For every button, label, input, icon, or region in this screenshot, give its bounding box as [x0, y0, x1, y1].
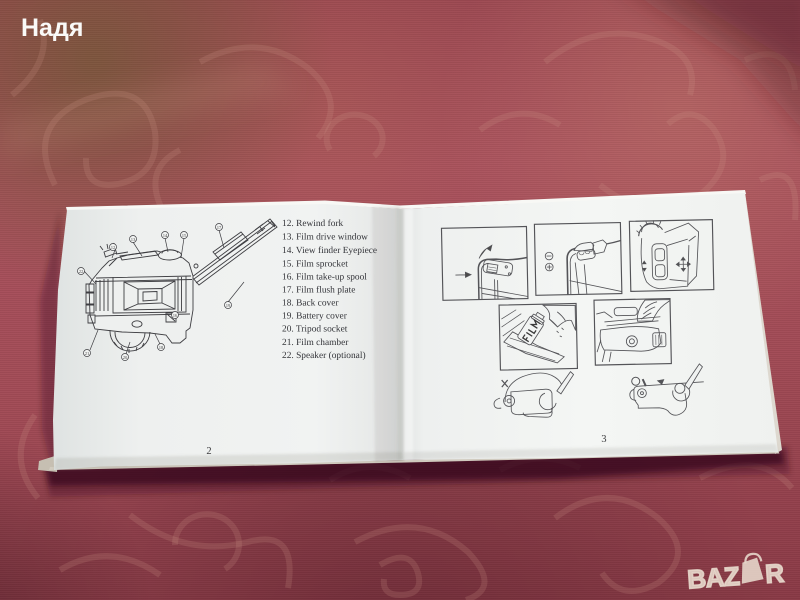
svg-text:16. Film take-up spool: 16. Film take-up spool — [282, 273, 367, 283]
svg-text:18. Back cover: 18. Back cover — [282, 299, 339, 309]
svg-text:2: 2 — [206, 446, 211, 457]
svg-text:16: 16 — [173, 313, 178, 318]
svg-text:20. Tripod socket: 20. Tripod socket — [282, 325, 348, 335]
svg-text:13. Film drive window: 13. Film drive window — [282, 233, 368, 243]
svg-text:20: 20 — [123, 355, 128, 360]
svg-text:14. View finder Eyepiece: 14. View finder Eyepiece — [282, 246, 377, 256]
svg-text:R: R — [764, 558, 785, 589]
svg-text:19. Battery cover: 19. Battery cover — [282, 312, 348, 322]
svg-text:3: 3 — [601, 434, 606, 445]
svg-text:12: 12 — [111, 245, 116, 250]
svg-text:22: 22 — [79, 269, 84, 274]
svg-text:12. Rewind fork: 12. Rewind fork — [282, 219, 344, 229]
svg-text:18: 18 — [159, 345, 164, 350]
svg-text:15. Film sprocket: 15. Film sprocket — [282, 260, 348, 270]
svg-text:21. Film chamber: 21. Film chamber — [282, 338, 349, 348]
svg-text:13: 13 — [131, 237, 136, 242]
svg-text:BAZ: BAZ — [686, 561, 741, 595]
svg-text:17. Film flush plate: 17. Film flush plate — [282, 286, 355, 296]
svg-text:14: 14 — [163, 233, 168, 238]
svg-text:15: 15 — [182, 233, 187, 238]
svg-text:21: 21 — [85, 351, 90, 356]
svg-text:17: 17 — [217, 225, 222, 230]
svg-text:19: 19 — [226, 303, 231, 308]
svg-text:22. Speaker (optional): 22. Speaker (optional) — [282, 351, 366, 361]
